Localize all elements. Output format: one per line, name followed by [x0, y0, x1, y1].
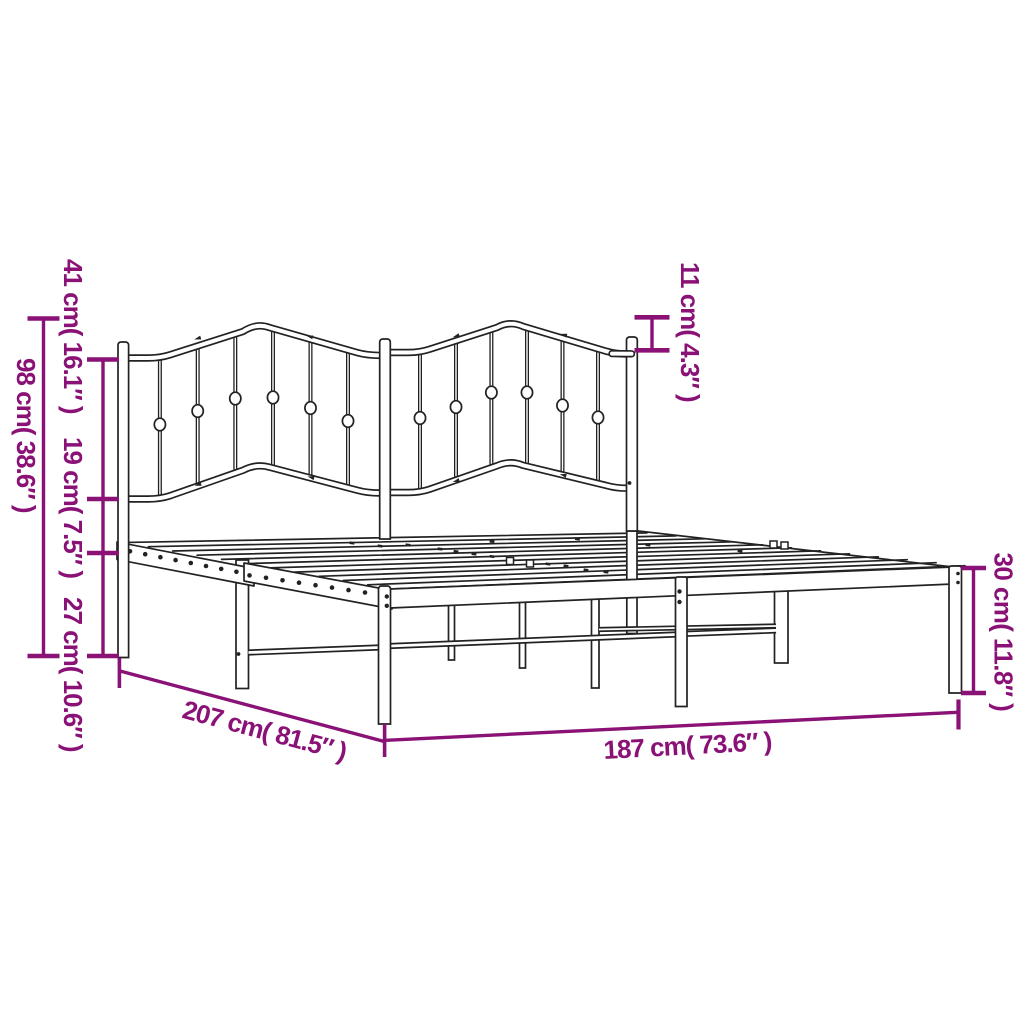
svg-text:30 cm( 11.8″ ): 30 cm( 11.8″ )	[989, 553, 1019, 712]
svg-text:19 cm( 7.5″ ): 19 cm( 7.5″ )	[58, 437, 88, 578]
svg-text:98 cm( 38.6″ ): 98 cm( 38.6″ )	[11, 358, 41, 513]
svg-text:41 cm( 16.1″ ): 41 cm( 16.1″ )	[58, 259, 88, 414]
svg-text:27 cm( 10.6″ ): 27 cm( 10.6″ )	[58, 597, 88, 752]
svg-text:11 cm( 4.3″ ): 11 cm( 4.3″ )	[675, 262, 705, 402]
